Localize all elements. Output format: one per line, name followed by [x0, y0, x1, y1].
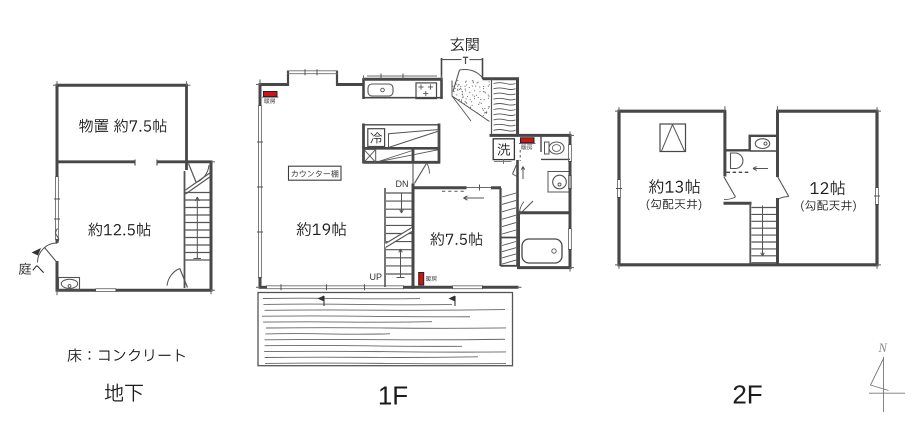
svg-text:1F: 1F — [378, 381, 408, 411]
svg-text:N: N — [878, 341, 888, 355]
svg-text:2F: 2F — [732, 380, 762, 410]
svg-text:DN: DN — [396, 179, 409, 189]
svg-text:UP: UP — [370, 272, 383, 282]
